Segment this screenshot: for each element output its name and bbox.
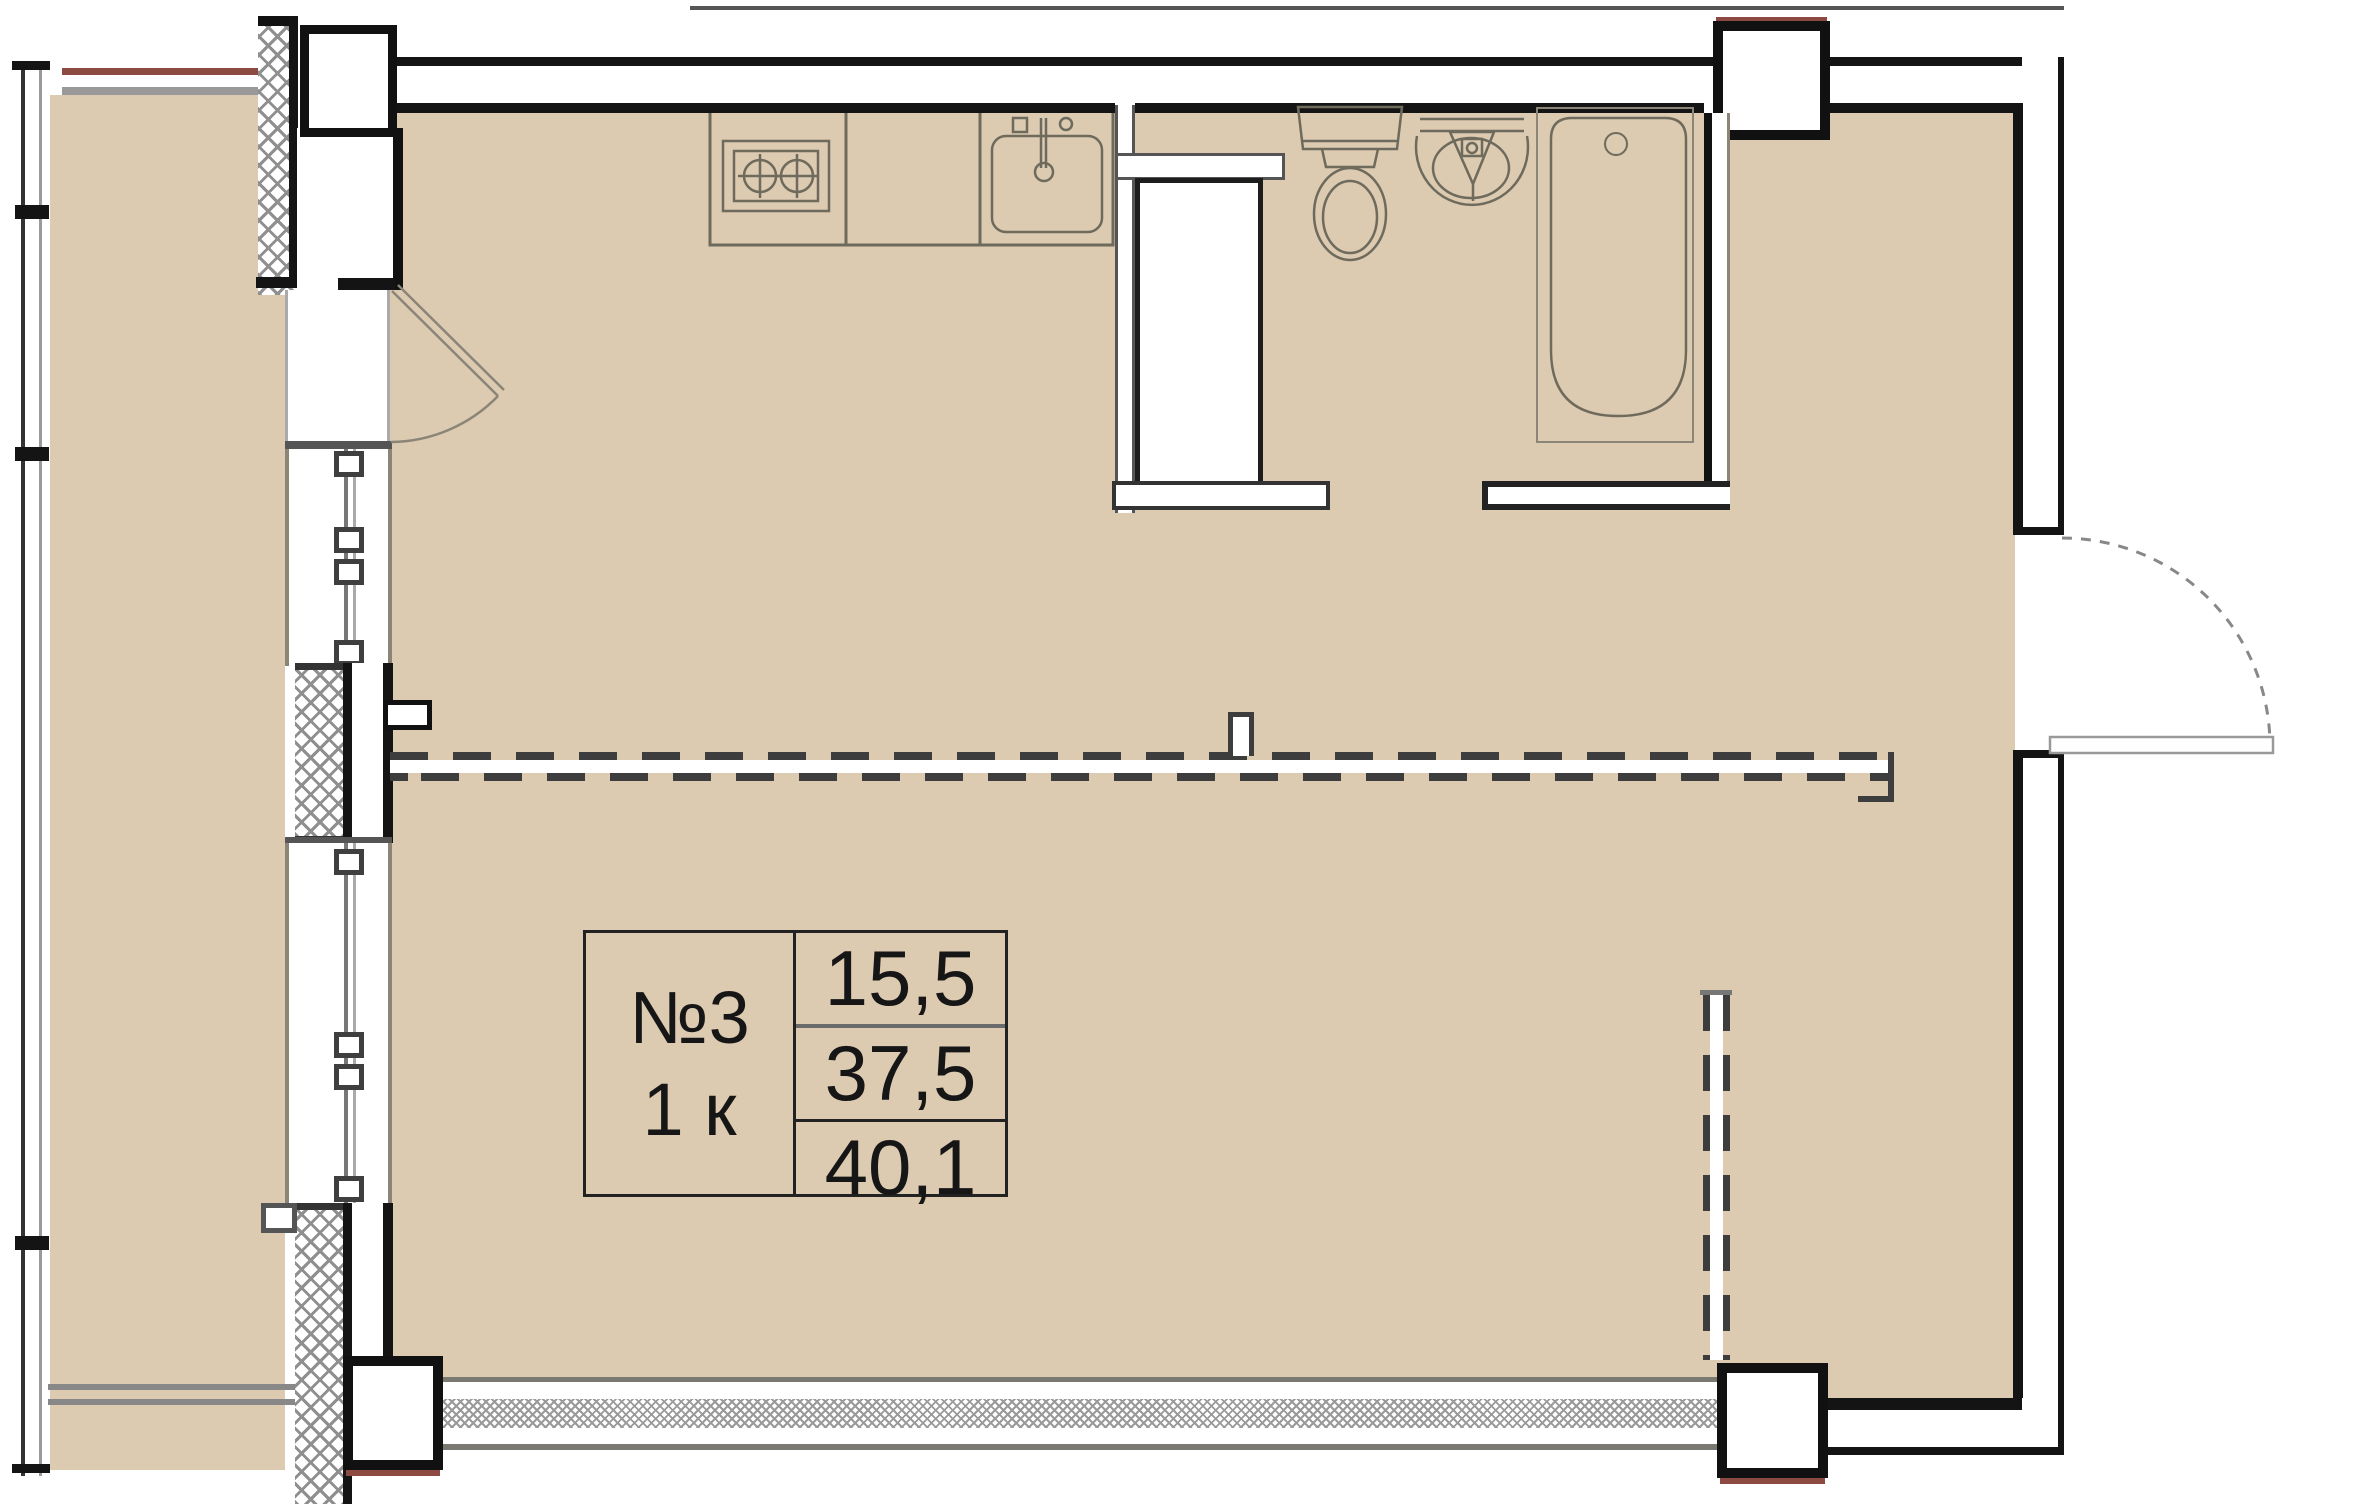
bathtub-icon (1537, 108, 1693, 442)
unit-info-table: №3 1 к 15,5 37,5 40,1 (583, 930, 1008, 1197)
kitchen-sink-icon (992, 118, 1102, 232)
toilet-icon (1298, 107, 1402, 260)
washbasin-icon (1416, 119, 1528, 205)
unit-type: 1 к (642, 1064, 736, 1156)
area-total: 40,1 (796, 1122, 1005, 1213)
kitchen-counter-icon (710, 113, 1113, 245)
fixtures-layer (0, 0, 2354, 1504)
entrance-door-icon (2050, 538, 2273, 753)
unit-areas-cell: 15,5 37,5 40,1 (796, 933, 1005, 1194)
area-apartment: 37,5 (796, 1028, 1005, 1122)
balcony-door-icon (391, 285, 504, 442)
unit-number: №3 (629, 972, 750, 1064)
unit-id-cell: №3 1 к (586, 933, 796, 1194)
stove-icon (723, 141, 829, 211)
area-living: 15,5 (796, 933, 1005, 1028)
floor-plan: №3 1 к 15,5 37,5 40,1 (0, 0, 2354, 1504)
